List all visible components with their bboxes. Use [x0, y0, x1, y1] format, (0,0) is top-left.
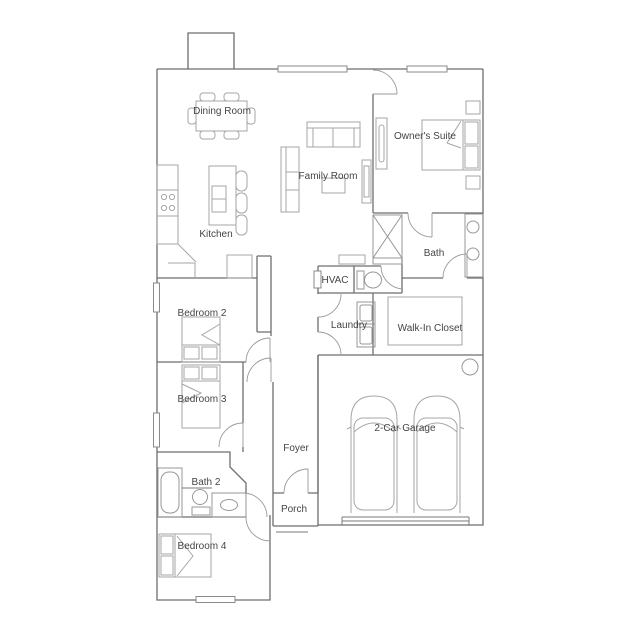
dresser-icon [376, 118, 387, 169]
room-label-family-room: Family Room [299, 171, 358, 182]
sink-icon [467, 248, 479, 260]
bathtub-icon [158, 468, 182, 517]
counter-corner [178, 244, 196, 262]
room-label-hvac: HVAC [321, 275, 348, 286]
burner-icon [161, 194, 166, 199]
pillow-icon [465, 146, 478, 168]
nightstand-icon [466, 101, 480, 114]
nightstand-icon [466, 176, 480, 189]
room-label-porch: Porch [281, 504, 307, 515]
window-icon [154, 413, 160, 447]
vanity-icon [212, 493, 246, 517]
pillow-icon [202, 347, 217, 359]
pillow-icon [184, 347, 199, 359]
room-label-two-car-garage: 2-Car Garage [374, 423, 436, 434]
window-icon [154, 283, 160, 312]
window-icon [278, 66, 347, 72]
media-console-inner [364, 166, 369, 197]
car-icon [347, 396, 401, 513]
door-swing-icon [318, 332, 341, 355]
chair-icon [200, 131, 215, 139]
family-room-fixtures [281, 122, 371, 264]
stool-icon [236, 215, 247, 235]
door-swing-icon [408, 213, 432, 237]
bath2-fixtures [157, 468, 246, 517]
door-swing-icon [373, 70, 397, 94]
window-icon [407, 66, 447, 72]
door-swing-icon [247, 358, 271, 382]
toilet-tank [192, 507, 210, 515]
pillow-icon [161, 536, 173, 554]
burner-icon [161, 205, 166, 210]
loveseat-icon [281, 147, 299, 212]
room-label-bedroom-2: Bedroom 2 [178, 308, 227, 319]
floorplan-drawing: Dining RoomOwner's SuiteFamily RoomKitch… [0, 0, 639, 639]
interior-walls [157, 94, 483, 517]
car-icon [410, 396, 464, 513]
door-swing-icon [318, 294, 341, 317]
chair-icon [200, 93, 215, 101]
door-swing-icon [219, 423, 243, 447]
water-heater-icon [462, 359, 478, 375]
room-label-bedroom-3: Bedroom 3 [178, 394, 227, 405]
toilet-tank [357, 271, 364, 289]
garage-fixtures [347, 359, 478, 513]
chair-icon [224, 131, 239, 139]
door-swing-icon [381, 266, 403, 289]
closet-shelving [388, 297, 462, 345]
room-label-laundry: Laundry [331, 320, 367, 331]
pillow-icon [184, 367, 199, 379]
floorplan-page: Dining RoomOwner's SuiteFamily RoomKitch… [0, 0, 639, 639]
hvac-louver-panel [314, 271, 321, 288]
room-label-bath-2: Bath 2 [192, 477, 221, 488]
kitchen-counter [157, 165, 178, 244]
sink-icon [467, 221, 479, 233]
burner-icon [169, 205, 174, 210]
bed-icon [422, 120, 480, 170]
room-label-owners-suite: Owner's Suite [394, 131, 456, 142]
cabinet-icon [339, 255, 365, 264]
toilet-icon [365, 272, 382, 288]
burner-icon [169, 194, 174, 199]
range-icon [157, 190, 178, 216]
closet-fixtures [388, 297, 462, 345]
blanket-fold [202, 324, 220, 345]
room-label-kitchen: Kitchen [199, 229, 232, 240]
room-label-bath: Bath [424, 248, 445, 259]
sink-icon [221, 500, 238, 511]
dresser-inner [379, 125, 384, 162]
pillow-icon [465, 122, 478, 144]
door-swing-icon [443, 254, 467, 278]
door-swing-icon [243, 493, 267, 517]
kitchen-fixtures [157, 165, 252, 278]
garage-door-icon [342, 517, 469, 525]
chair-icon [224, 93, 239, 101]
stool-icon [236, 171, 247, 191]
room-label-bedroom-4: Bedroom 4 [178, 541, 227, 552]
stool-icon [236, 193, 247, 213]
washer-inner [360, 305, 372, 321]
shower-bench [373, 258, 402, 264]
bathtub-inner [161, 472, 179, 513]
pillow-icon [161, 556, 173, 575]
room-label-walk-in-closet: Walk-In Closet [398, 323, 463, 334]
room-label-dining-room: Dining Room [193, 106, 251, 117]
door-swing-icon [284, 469, 308, 493]
owners-suite-fixtures [376, 101, 480, 189]
kitchen-island [209, 166, 236, 225]
toilet-icon [193, 490, 208, 505]
bed-icon [182, 317, 220, 362]
bedroom2-fixtures [182, 317, 220, 362]
kitchen-counter [168, 263, 195, 278]
room-label-foyer: Foyer [283, 443, 309, 454]
door-swing-icon [246, 517, 270, 541]
pillow-icon [202, 367, 217, 379]
kitchen-cabinet [227, 255, 252, 278]
window-icon [196, 597, 235, 603]
